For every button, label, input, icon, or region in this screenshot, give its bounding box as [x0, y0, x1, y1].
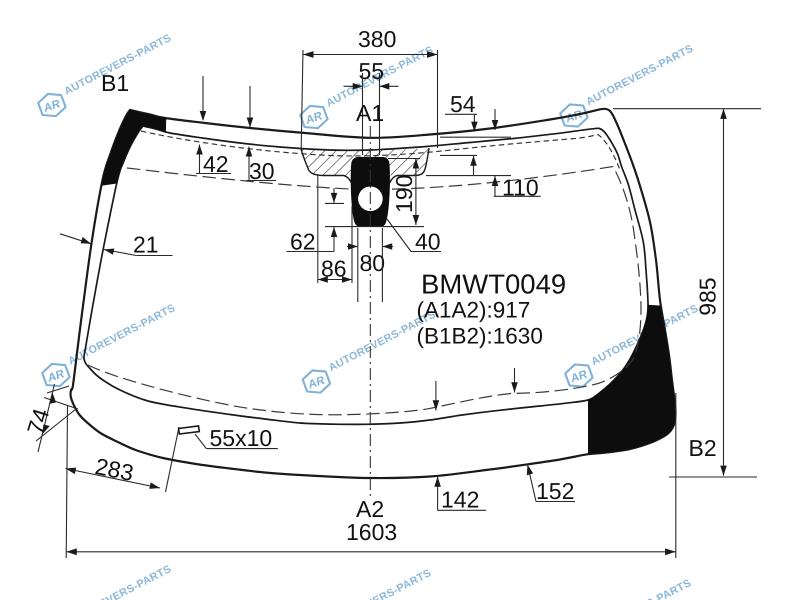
svg-text:190: 190 — [391, 175, 417, 213]
svg-text:985: 985 — [695, 277, 721, 315]
svg-text:152: 152 — [536, 478, 574, 504]
svg-text:B2: B2 — [689, 435, 717, 461]
svg-text:B1: B1 — [101, 70, 129, 96]
svg-text:62: 62 — [290, 229, 316, 255]
svg-text:(A1A2):917: (A1A2):917 — [417, 298, 531, 323]
svg-text:142: 142 — [441, 487, 479, 513]
svg-text:A1: A1 — [356, 100, 384, 126]
svg-text:21: 21 — [133, 232, 159, 258]
svg-text:1603: 1603 — [346, 519, 397, 545]
svg-text:80: 80 — [360, 250, 386, 276]
svg-text:55x10: 55x10 — [210, 425, 273, 451]
svg-text:40: 40 — [415, 229, 441, 255]
svg-text:54: 54 — [450, 91, 476, 117]
svg-text:(B1B2):1630: (B1B2):1630 — [417, 324, 543, 349]
svg-text:380: 380 — [358, 26, 396, 52]
svg-text:BMWT0049: BMWT0049 — [421, 269, 566, 300]
